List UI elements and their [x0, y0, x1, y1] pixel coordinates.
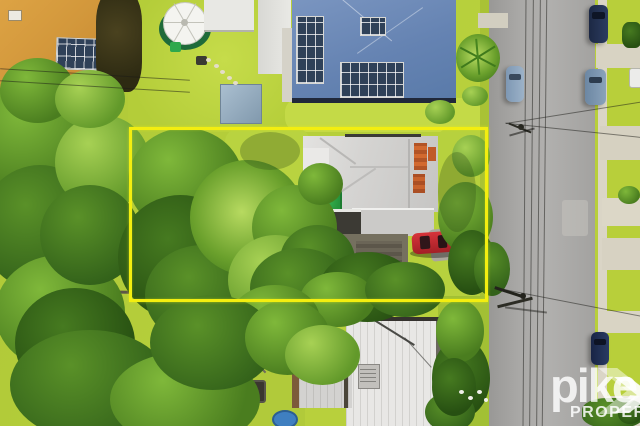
parked-car — [589, 5, 608, 43]
logo-tagline-text: PROPERTY — [570, 404, 640, 422]
driveway — [602, 238, 640, 270]
flower-dot — [468, 396, 473, 400]
driveway — [478, 13, 508, 28]
stepping-stone — [233, 81, 238, 85]
skylight — [8, 10, 22, 21]
flower-dot — [484, 398, 488, 402]
green-bin — [170, 42, 181, 52]
parked-car — [506, 66, 524, 102]
tree — [285, 325, 360, 385]
logo-brand-text: pike — [550, 362, 636, 409]
blue-pool — [272, 410, 298, 426]
subject-property-boundary — [129, 127, 488, 302]
road-patch — [562, 200, 588, 236]
hedge — [622, 22, 640, 48]
parked-car — [585, 69, 606, 105]
car-windshield — [589, 77, 602, 83]
aerial-photo: pike PROPERTY — [0, 0, 640, 426]
car-windshield — [509, 74, 521, 80]
driveway — [600, 126, 640, 160]
garden-shed — [220, 84, 262, 124]
flower-dot — [477, 390, 482, 394]
stepping-stone — [227, 76, 232, 80]
roof-unit-lines — [360, 368, 376, 382]
bush — [462, 86, 488, 106]
tree — [55, 70, 125, 128]
solar-array — [360, 17, 386, 36]
bush — [432, 358, 476, 416]
solar-array — [340, 62, 404, 98]
stepping-stone — [214, 64, 219, 68]
flower-dot — [459, 390, 464, 394]
stepping-stone — [220, 70, 225, 74]
car-windshield — [594, 339, 606, 345]
bush — [618, 186, 640, 204]
car-windshield — [592, 12, 605, 19]
pike-logo: pike PROPERTY — [548, 360, 640, 424]
white-shed-roof — [204, 0, 254, 32]
bush — [425, 100, 455, 124]
solar-array — [296, 16, 324, 84]
tank-cap — [181, 19, 188, 26]
stepping-stone — [206, 58, 211, 62]
white-car — [629, 68, 640, 88]
bush — [436, 300, 484, 362]
